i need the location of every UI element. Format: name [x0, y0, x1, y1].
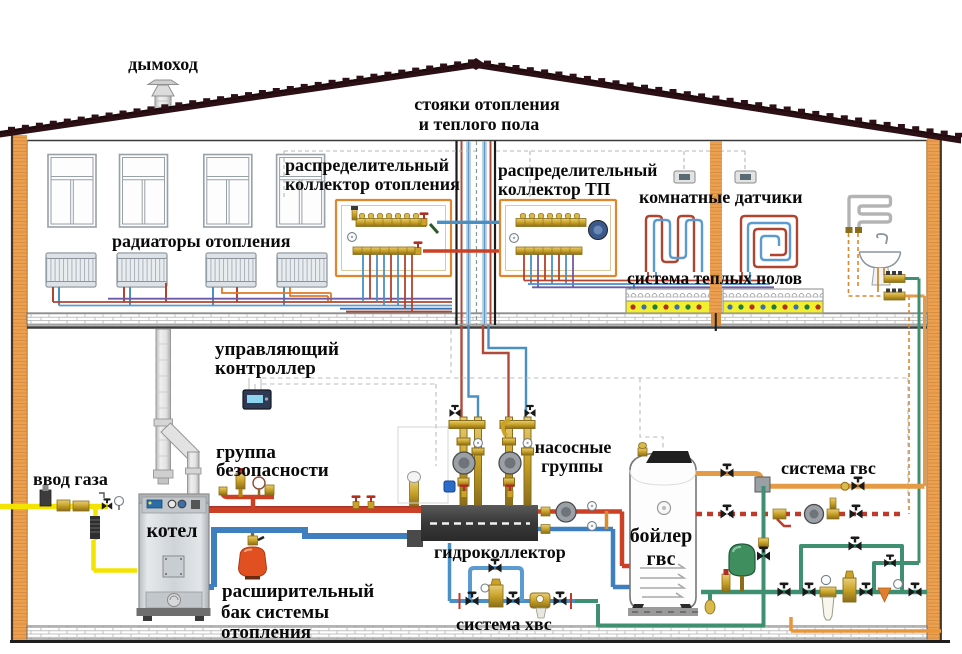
- svg-text:котел: котел: [147, 520, 198, 542]
- svg-text:комнатные датчики: комнатные датчики: [639, 187, 802, 207]
- svg-text:группы: группы: [541, 456, 603, 476]
- svg-text:гидроколлектор: гидроколлектор: [434, 542, 566, 562]
- svg-text:насосные: насосные: [535, 437, 612, 457]
- svg-text:контроллер: контроллер: [215, 358, 316, 379]
- svg-text:система гвс: система гвс: [781, 458, 876, 478]
- svg-text:отопления: отопления: [221, 622, 311, 643]
- svg-text:коллектор ТП: коллектор ТП: [498, 179, 611, 199]
- svg-text:гвс: гвс: [646, 548, 675, 570]
- svg-text:распределительный: распределительный: [498, 160, 657, 180]
- svg-text:радиаторы отопления: радиаторы отопления: [112, 231, 291, 251]
- svg-text:управляющий: управляющий: [215, 339, 339, 360]
- svg-text:система хвс: система хвс: [456, 614, 552, 634]
- svg-text:распределительный: распределительный: [285, 155, 449, 175]
- svg-text:безопасности: безопасности: [216, 460, 329, 481]
- svg-text:бойлер: бойлер: [630, 525, 692, 547]
- svg-text:расширительный: расширительный: [222, 581, 374, 602]
- svg-text:бак системы: бак системы: [221, 602, 329, 623]
- svg-text:коллектор отопления: коллектор отопления: [285, 174, 460, 194]
- svg-text:и теплого пола: и теплого пола: [419, 114, 540, 134]
- svg-text:ввод газа: ввод газа: [33, 469, 108, 489]
- svg-text:система теплых полов: система теплых полов: [627, 268, 802, 288]
- svg-text:стояки отопления: стояки отопления: [414, 94, 560, 114]
- svg-text:дымоход: дымоход: [128, 54, 198, 74]
